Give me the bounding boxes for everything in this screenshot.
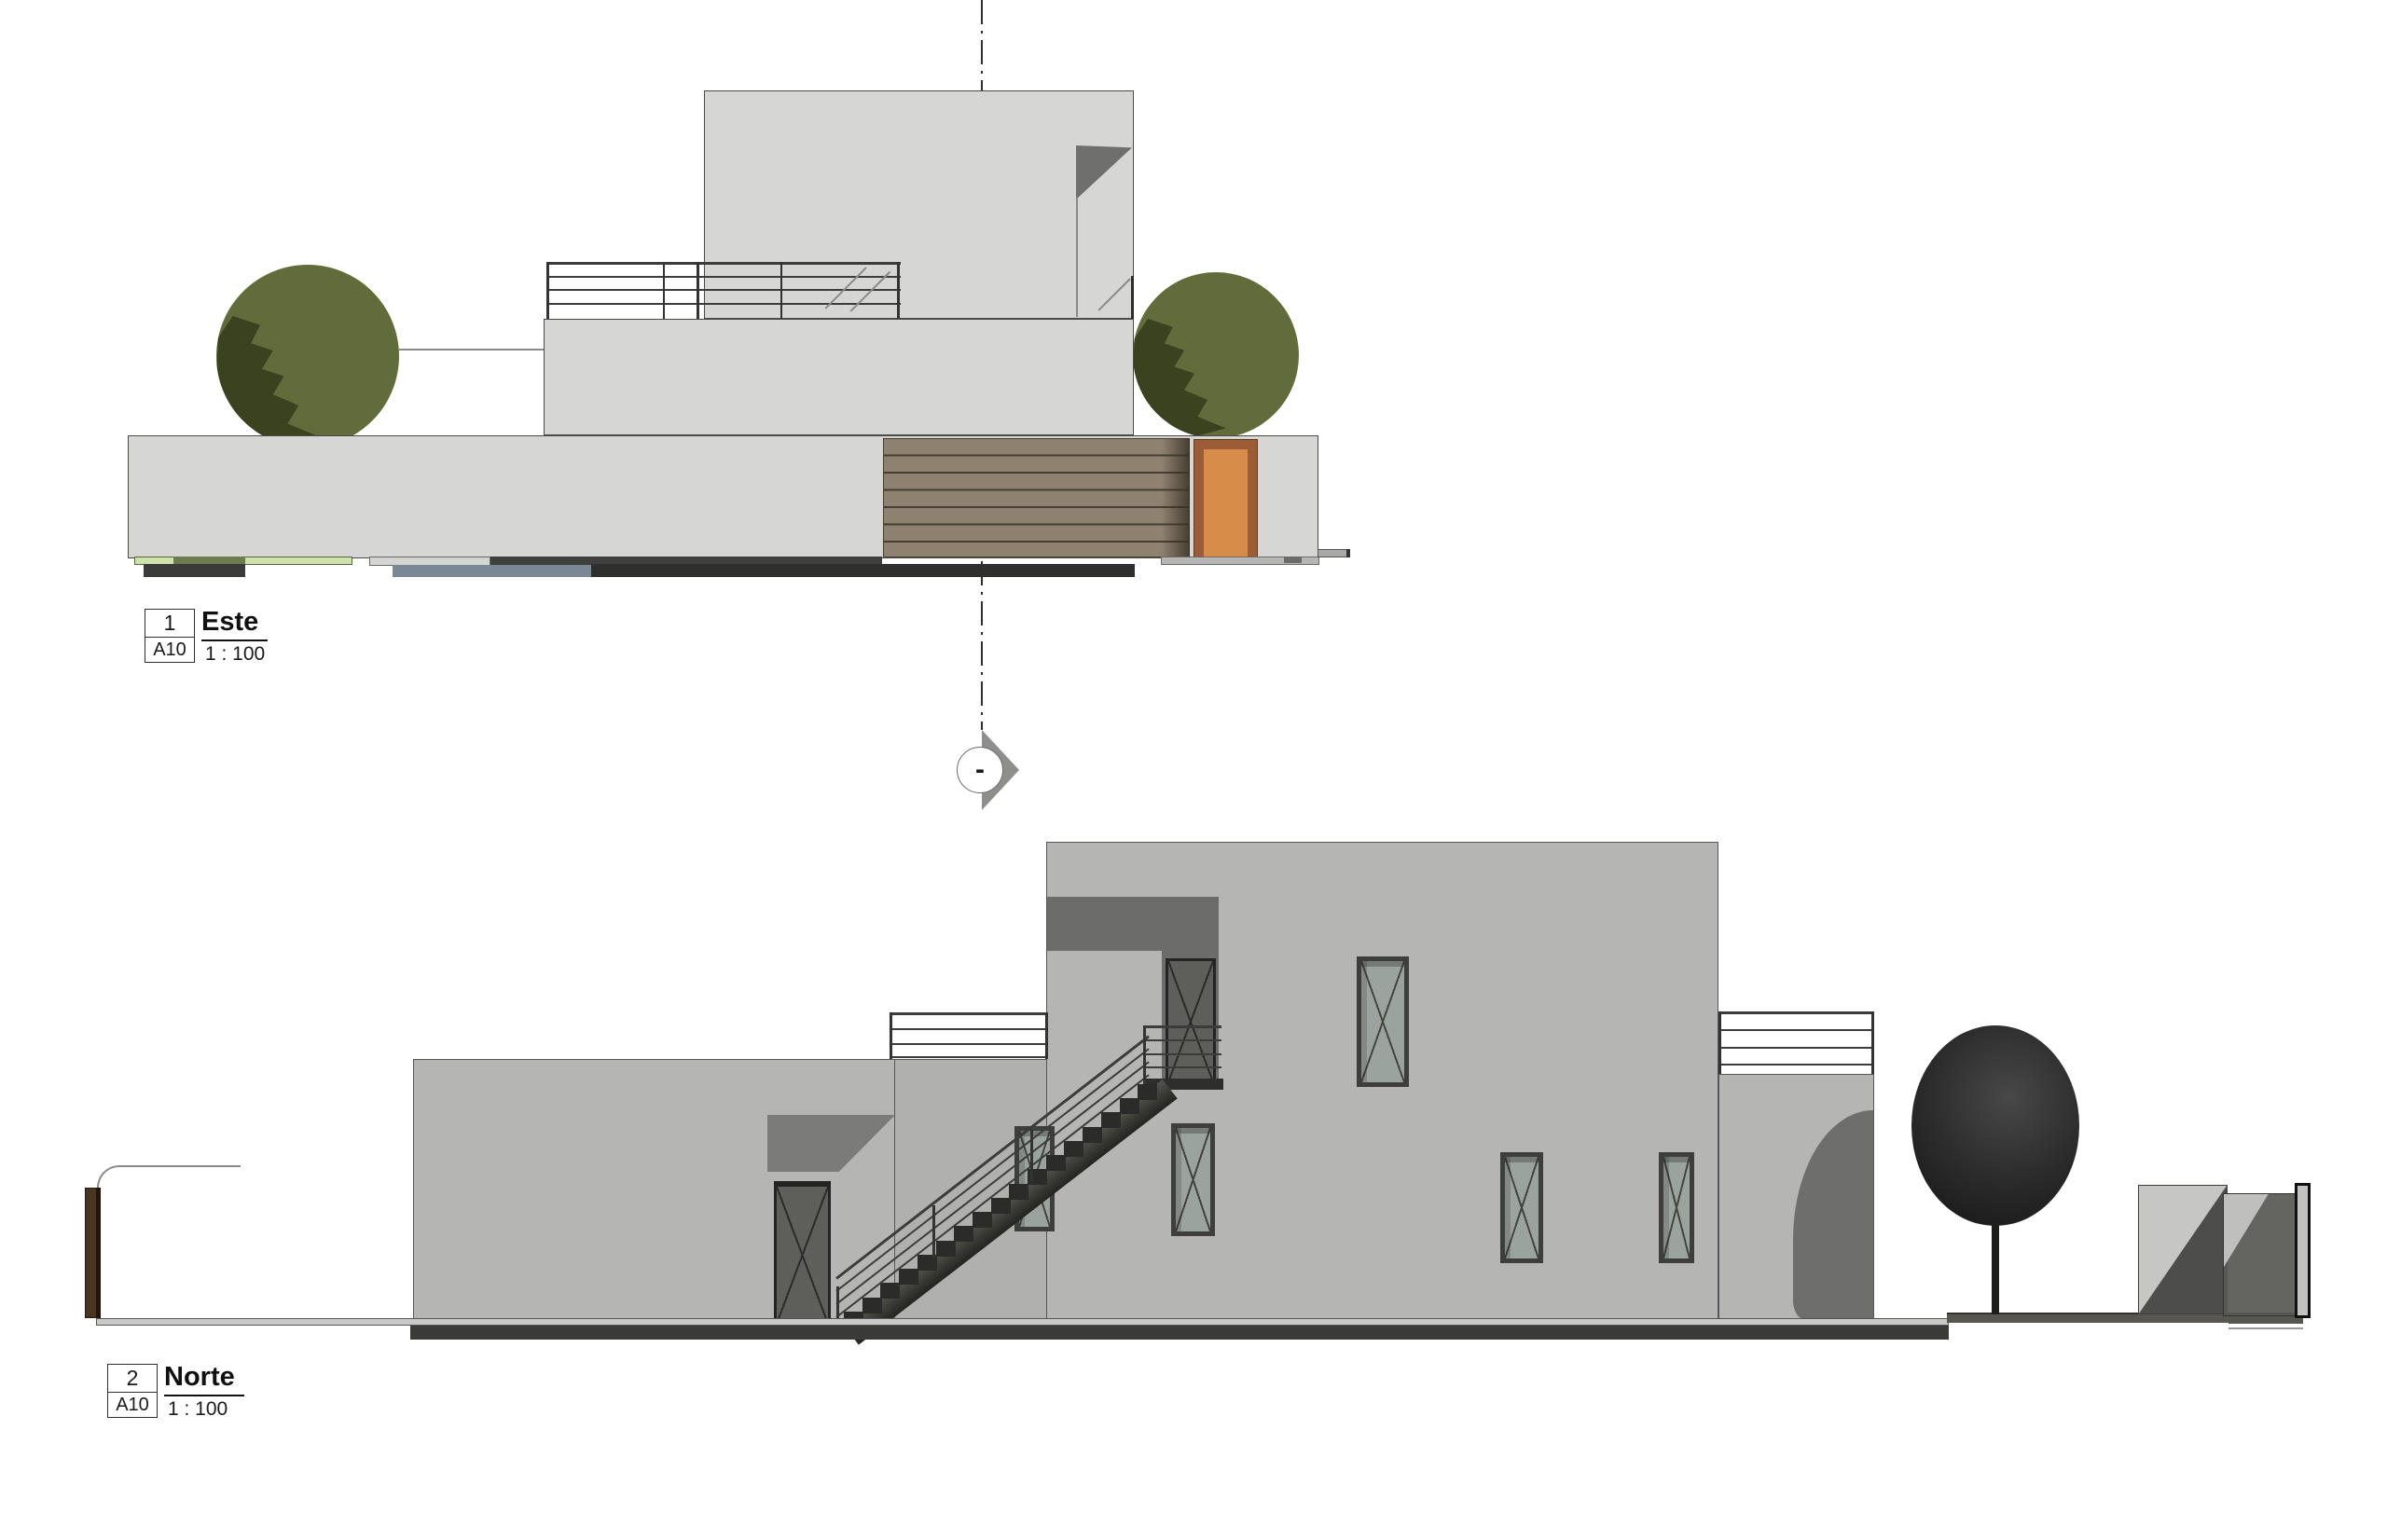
rail (1718, 1064, 1874, 1066)
rail-post (890, 1012, 892, 1059)
este-upper-volume (704, 90, 1134, 319)
norte-tree-trunk (1992, 1212, 1999, 1314)
rail (1718, 1029, 1874, 1031)
rail (546, 276, 901, 278)
este-entry-door (1193, 439, 1258, 557)
rail-post (1045, 1012, 1048, 1059)
norte-tree-icon (1911, 1025, 2079, 1226)
stair-tread (1138, 1084, 1157, 1100)
rail-top (1718, 1011, 1874, 1014)
rail-post (546, 262, 549, 319)
rail-post (932, 1205, 935, 1258)
rail-post (663, 262, 665, 319)
stair-tread (1120, 1098, 1139, 1114)
panel-base-line (2228, 1322, 2303, 1324)
foundation-block (144, 564, 245, 577)
rail (546, 289, 901, 291)
stair-tread (1064, 1141, 1083, 1157)
ground-stub-end (1346, 549, 1350, 557)
rail (890, 1043, 1048, 1045)
panel-base-line (2228, 1327, 2303, 1329)
este-entry-door-panel (1204, 449, 1248, 557)
rail-horizontal (1143, 1066, 1221, 1068)
ground-stub (1318, 549, 1350, 557)
norte-window-low-1 (1500, 1152, 1543, 1263)
rail-top (890, 1012, 1048, 1015)
rail (1718, 1047, 1874, 1049)
viewport-sheet-ref: A10 (145, 638, 194, 663)
fence-post-brown (85, 1188, 101, 1318)
porch-recess-shadow (1047, 897, 1219, 951)
este-terrace-edge-line (399, 349, 545, 351)
stair-tread (991, 1198, 1011, 1214)
rail-post (780, 262, 782, 319)
norte-right-wing (1718, 1074, 1874, 1319)
tree-shadow (1133, 272, 1299, 438)
rail-top (546, 262, 901, 265)
viewport-sheet-ref: A10 (108, 1393, 157, 1418)
viewport-number: 1 (145, 610, 194, 638)
ground-dark-strip (591, 564, 1135, 577)
norte-window-low-2 (1659, 1152, 1694, 1263)
norte-wing-door (774, 1181, 831, 1327)
norte-ground-dark-band (410, 1326, 1949, 1340)
norte-view-scale: 1 : 100 (168, 1398, 228, 1421)
norte-view-title: Norte (164, 1364, 244, 1396)
stair-tread (1083, 1127, 1102, 1143)
este-roof-notch-shadow (1076, 145, 1132, 199)
curb-line (121, 1165, 241, 1167)
stair-tread (936, 1241, 956, 1257)
section-marker-text: - (975, 754, 985, 786)
rail-post (1718, 1011, 1721, 1074)
este-viewport-tag: 1 A10 (145, 609, 195, 663)
glass-panel-shadow (2139, 1186, 2227, 1313)
sill-shadow (1284, 557, 1302, 563)
stair-tread (1009, 1184, 1028, 1200)
norte-window-below-landing (1171, 1123, 1215, 1236)
rail-horizontal (1143, 1025, 1221, 1028)
rail-horizontal (1143, 1039, 1221, 1041)
glass-panel-end-post (2295, 1183, 2311, 1318)
rail (890, 1028, 1048, 1030)
stair-tread (973, 1212, 992, 1228)
norte-viewport-tag: 2 A10 (107, 1364, 158, 1418)
rail (546, 303, 901, 305)
rail-post (897, 262, 900, 319)
stair-tread (899, 1269, 918, 1285)
rail-post (1030, 1129, 1033, 1181)
este-wood-slat-wall (883, 438, 1190, 557)
este-slat-shadow (1162, 438, 1190, 557)
drawing-sheet: - 1 A10 Este 1 : 100 (0, 0, 2387, 1540)
este-view-title: Este (201, 609, 268, 641)
este-recess-edge-line (1076, 198, 1078, 317)
stair-tread (954, 1226, 973, 1242)
rail-post (1871, 1011, 1874, 1074)
rail-horizontal (1143, 1053, 1221, 1055)
stair-tread (880, 1283, 900, 1299)
viewport-number: 2 (108, 1365, 157, 1393)
glass-panel-left (2138, 1185, 2228, 1314)
rail-post (697, 262, 699, 319)
este-right-tree-icon (1133, 272, 1299, 438)
section-marker-bubble: - (957, 747, 1003, 793)
rail (890, 1056, 1048, 1058)
este-view-scale: 1 : 100 (205, 643, 265, 666)
glass-panel-right (2223, 1193, 2297, 1316)
glass-panel-highlight (2224, 1194, 2296, 1315)
este-balustrade-end-post (1131, 276, 1134, 319)
stair-tread (1101, 1112, 1121, 1128)
este-left-tree-icon (216, 265, 399, 447)
norte-pavement-strip (96, 1318, 1949, 1326)
norte-window-upper (1357, 956, 1409, 1087)
este-middle-volume (544, 319, 1134, 435)
rail-post (1143, 1025, 1146, 1084)
stair-tread (862, 1298, 882, 1313)
stair-soffit-shadow (767, 1115, 895, 1172)
stair-tread (1046, 1155, 1066, 1171)
tree-shadow-on-wall (1793, 1110, 1873, 1319)
curb-corner-line (97, 1165, 123, 1191)
pool-strip (393, 565, 591, 577)
tree-shadow (216, 265, 399, 447)
